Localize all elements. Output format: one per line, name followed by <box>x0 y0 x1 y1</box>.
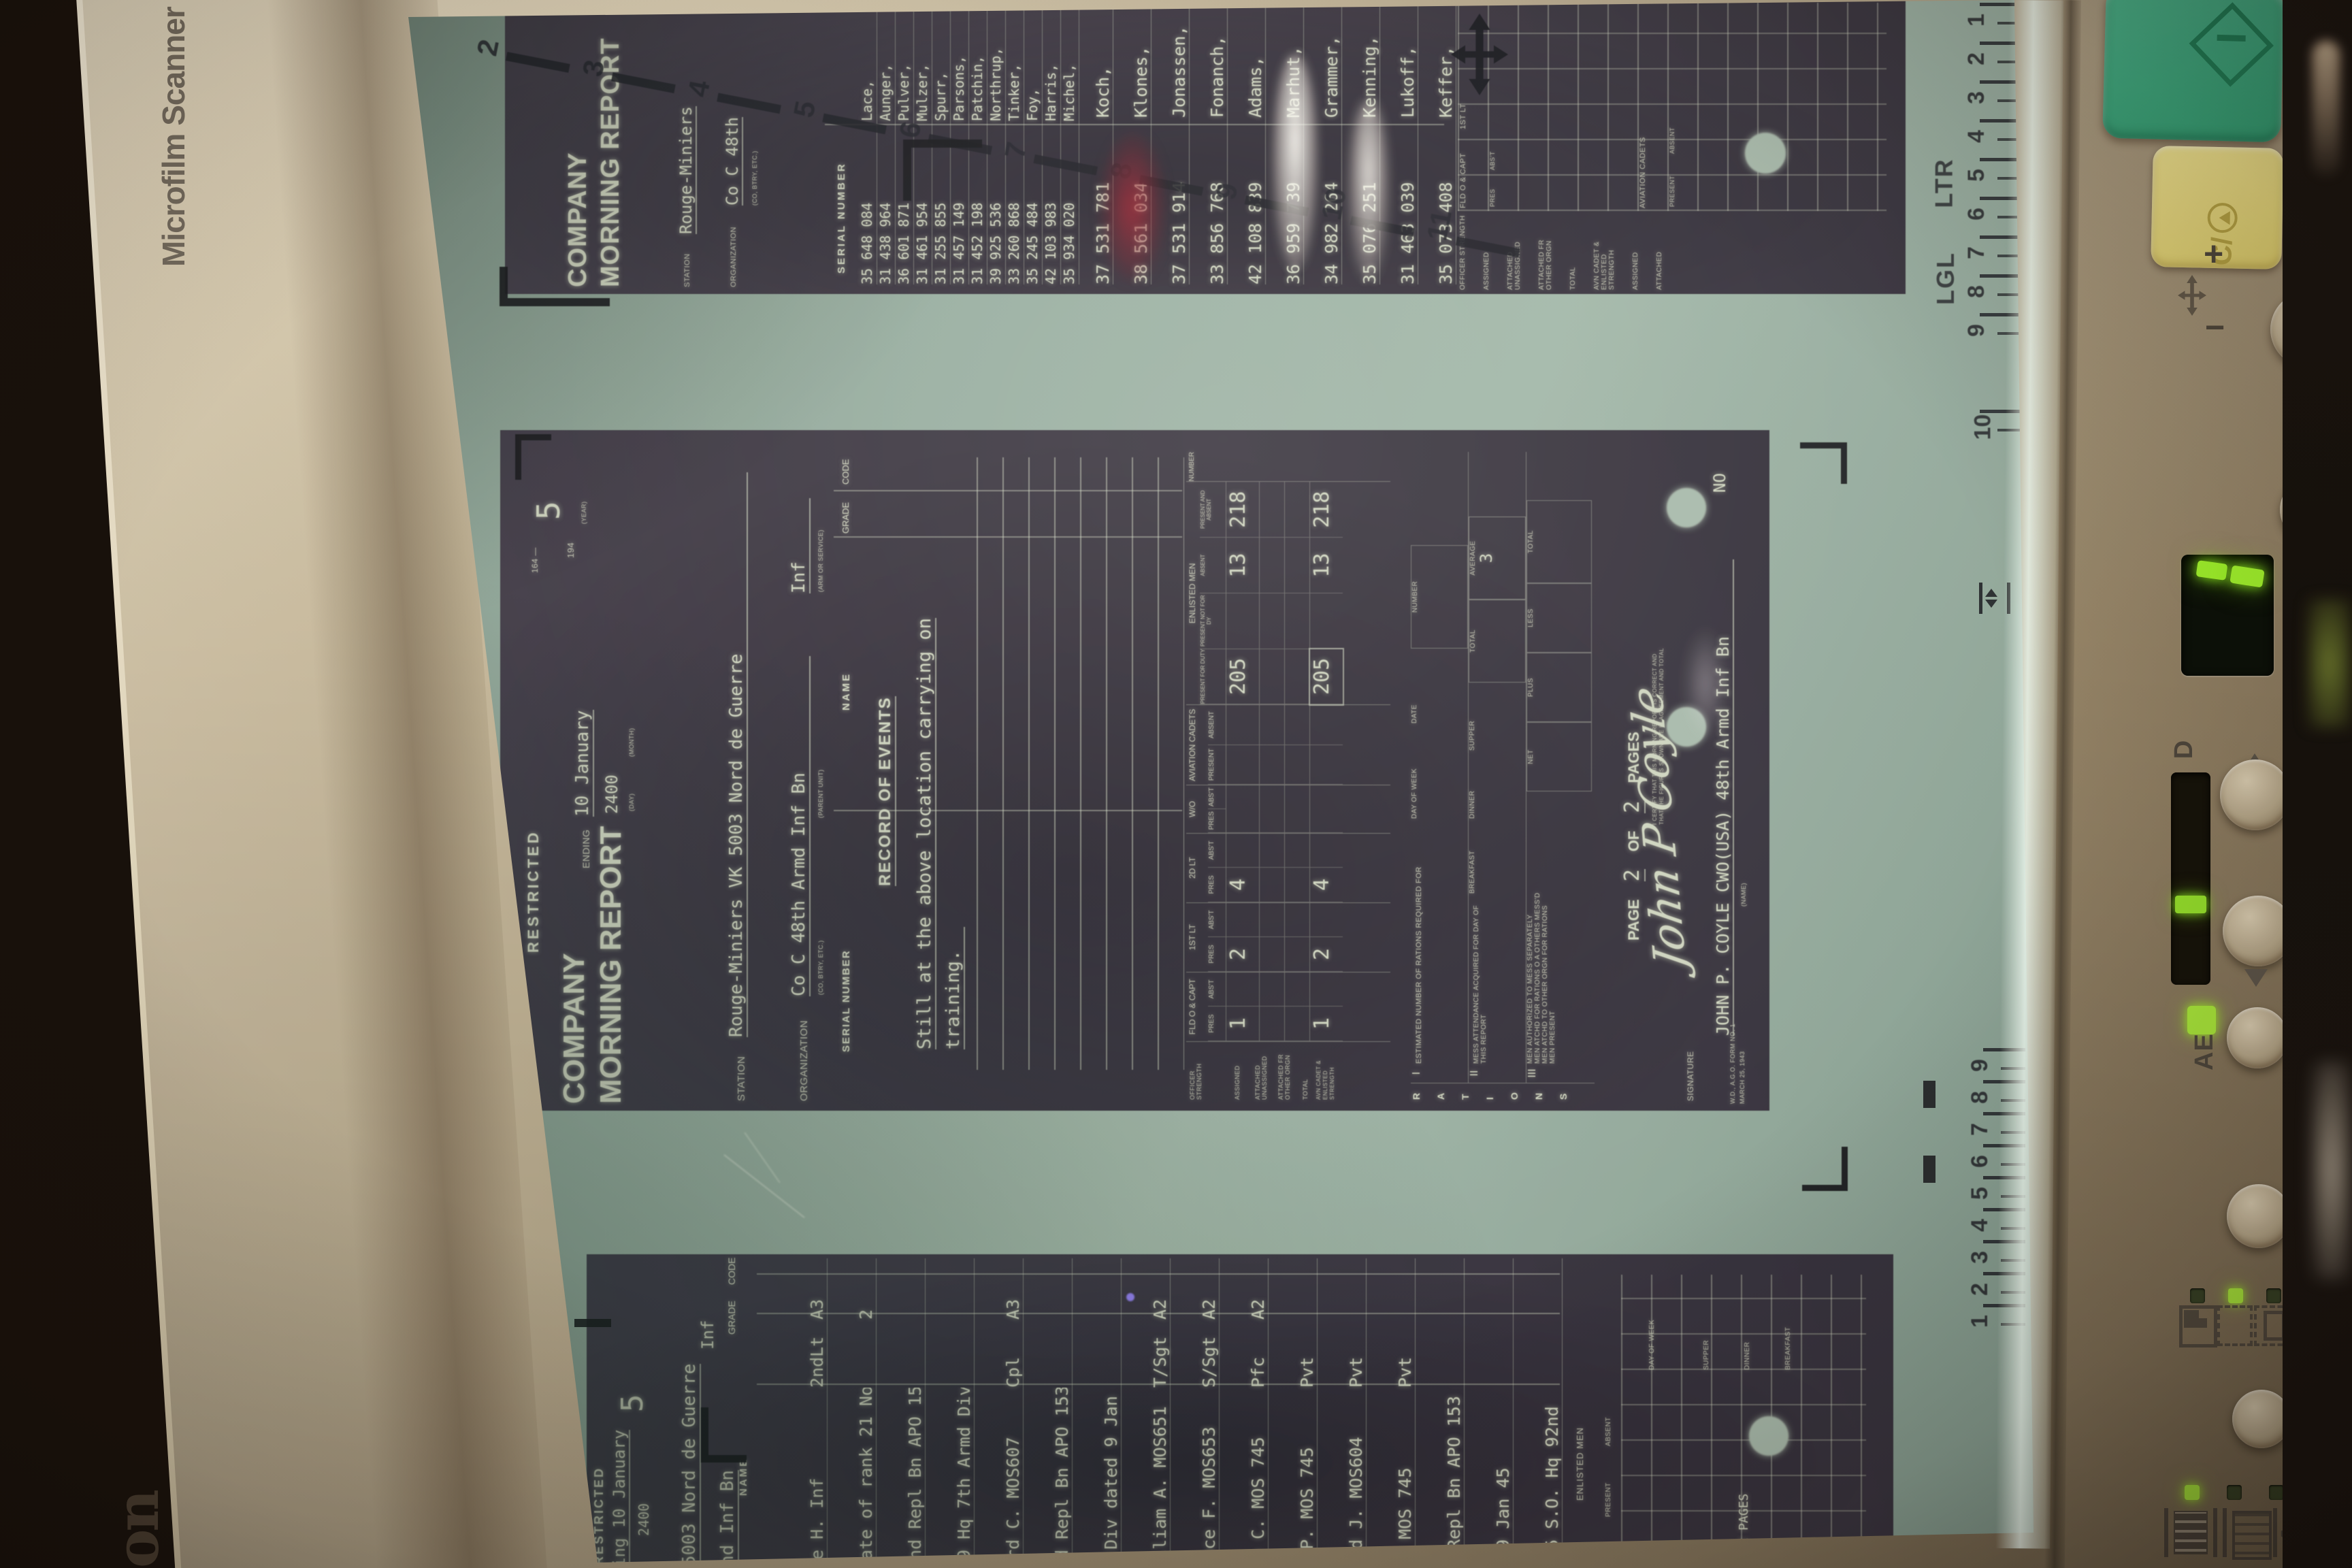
fiche-icon-bar <box>2164 1508 2168 1557</box>
fiche-icon-bar <box>2223 1508 2227 1557</box>
positive-film-icon[interactable] <box>2217 1305 2253 1346</box>
ae-label: AE <box>2190 1033 2219 1071</box>
stop-circle-icon <box>2207 203 2238 233</box>
panel-knob[interactable] <box>2227 1007 2288 1068</box>
start-diamond-icon <box>2189 2 2274 86</box>
brand-text: Microfilm Scanner 30 <box>156 0 191 267</box>
mode-led <box>2266 1288 2281 1303</box>
filmtype-led <box>2185 1485 2200 1500</box>
density-d-label: D <box>2170 740 2199 759</box>
roll-film-icon[interactable] <box>2174 1511 2208 1554</box>
background-object <box>2311 1062 2352 1279</box>
background-glint <box>2313 41 2340 177</box>
shift-minus-label: − <box>2205 308 2225 347</box>
mode-led <box>2228 1288 2243 1303</box>
scanner-screen: COMPANY MORNING REPORT STATION Rouge-Min… <box>381 0 2069 1568</box>
density-slider-indicator <box>2175 896 2206 913</box>
brand-logo: on <box>103 1496 182 1568</box>
background-object <box>2307 599 2352 728</box>
shift-plus-label: + <box>2204 234 2223 274</box>
fiche-film-icon[interactable] <box>2232 1511 2272 1560</box>
filmtype-led <box>2269 1485 2284 1500</box>
negative-film-icon[interactable] <box>2179 1305 2217 1347</box>
start-scan-button[interactable] <box>2102 0 2285 142</box>
photo-of-microfilm-scanner: Microfilm Scanner 30 on COMPANY MORNING … <box>0 0 2352 1568</box>
panel-knob[interactable] <box>2227 1184 2291 1248</box>
fiche-icon-bar <box>2213 1508 2217 1557</box>
brand-strip: Microfilm Scanner 30 <box>155 8 244 267</box>
shift-move-icon <box>2178 275 2192 295</box>
advance-down-icon <box>2244 969 2268 998</box>
filmtype-led <box>2227 1485 2242 1500</box>
film-advance-knob[interactable] <box>2220 759 2291 830</box>
background-dark <box>2283 0 2352 1568</box>
canon-logo-partial: on <box>103 1492 172 1568</box>
mode-led <box>2190 1288 2205 1303</box>
ae-led <box>2187 1006 2216 1034</box>
density-slider-window[interactable] <box>2171 772 2210 985</box>
